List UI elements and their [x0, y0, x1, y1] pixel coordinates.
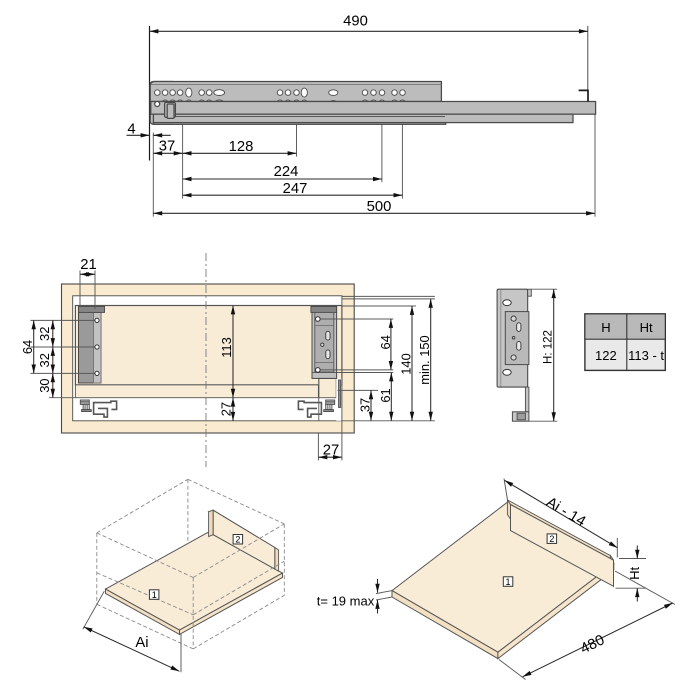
svg-text:2: 2	[549, 534, 554, 544]
svg-text:113 - t: 113 - t	[628, 348, 664, 363]
svg-text:1: 1	[505, 577, 510, 587]
svg-text:2: 2	[235, 535, 240, 545]
svg-text:140: 140	[398, 353, 413, 375]
svg-text:37: 37	[159, 139, 175, 155]
svg-text:27: 27	[219, 402, 234, 416]
svg-text:21: 21	[80, 257, 96, 273]
svg-text:224: 224	[274, 164, 299, 180]
svg-text:122: 122	[595, 348, 617, 363]
svg-text:Ht: Ht	[640, 320, 653, 335]
svg-text:27: 27	[323, 443, 339, 459]
svg-text:113: 113	[219, 337, 234, 358]
svg-text:61: 61	[378, 388, 393, 402]
svg-text:Ht: Ht	[627, 566, 642, 579]
svg-text:32: 32	[37, 327, 52, 341]
svg-text:30: 30	[37, 378, 52, 392]
svg-text:4: 4	[127, 122, 135, 138]
svg-text:1: 1	[152, 590, 157, 600]
svg-text:480: 480	[578, 632, 607, 657]
svg-text:64: 64	[20, 340, 35, 354]
svg-text:min. 150: min. 150	[417, 335, 432, 384]
svg-text:H: H	[601, 320, 610, 335]
svg-text:64: 64	[378, 335, 393, 349]
svg-text:t= 19 max: t= 19 max	[317, 594, 375, 609]
svg-text:32: 32	[37, 353, 52, 367]
svg-text:128: 128	[229, 139, 254, 155]
svg-text:Ai: Ai	[135, 635, 148, 651]
svg-text:500: 500	[367, 199, 392, 215]
svg-text:37: 37	[358, 398, 373, 412]
svg-text:490: 490	[343, 14, 368, 30]
svg-text:H: 122: H: 122	[542, 330, 554, 364]
svg-text:247: 247	[283, 181, 308, 197]
